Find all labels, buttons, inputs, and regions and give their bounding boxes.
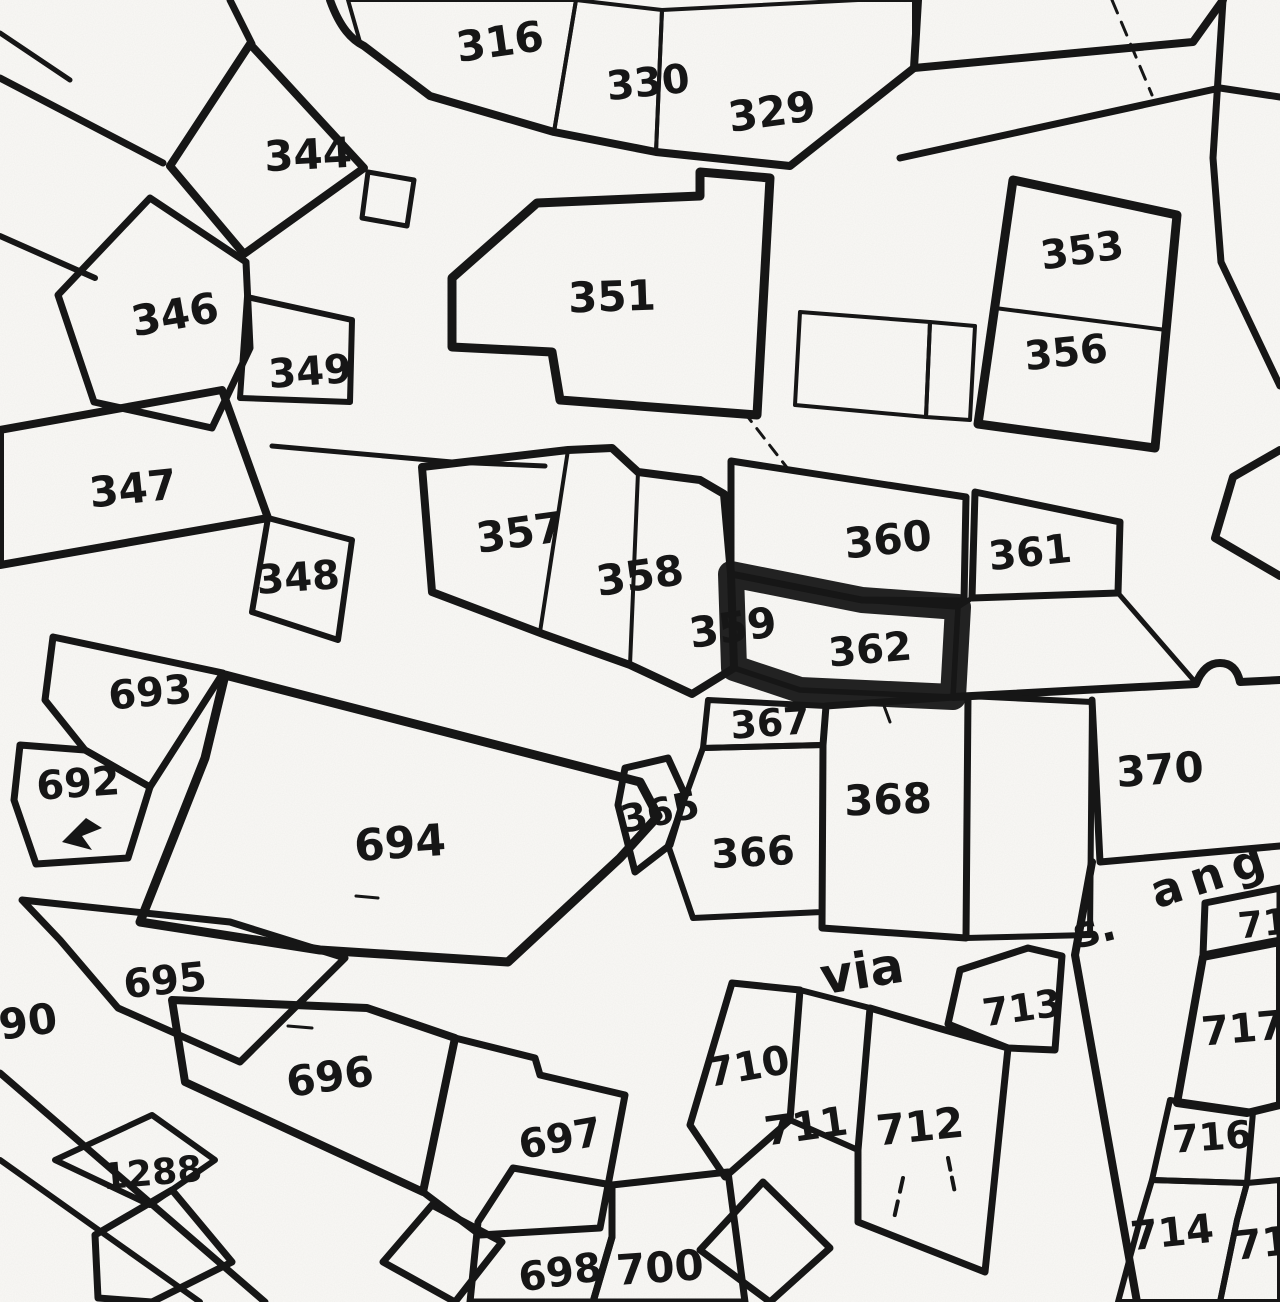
cadastral-map: 316 330 329 344 353 356 346 349 351 347 … <box>0 0 1280 1302</box>
parcel-330-label: 330 <box>604 56 692 110</box>
parcel-695-label: 695 <box>121 954 209 1008</box>
map-canvas: 316 330 329 344 353 356 346 349 351 347 … <box>0 0 1280 1302</box>
parcel-344-label: 344 <box>263 128 353 182</box>
parcel-90-label: 90 <box>0 993 60 1050</box>
parcel-366-label: 366 <box>710 828 796 878</box>
tick-mark <box>288 1026 312 1028</box>
parcel-349-label: 349 <box>267 346 354 398</box>
parcel-717-label: 717 <box>1199 1002 1280 1055</box>
parcel-368-label: 368 <box>843 773 932 825</box>
parcel-360-label: 360 <box>842 511 934 569</box>
parcel-348-label: 348 <box>255 552 342 604</box>
parcel-693-label: 693 <box>106 666 193 719</box>
parcel-361-label: 361 <box>986 526 1074 580</box>
parcel-718-partial-label: 71 <box>1236 901 1280 947</box>
parcel-347-label: 347 <box>87 460 179 518</box>
parcel-716-label: 716 <box>1171 1112 1253 1161</box>
parcel-700-label: 700 <box>615 1240 706 1295</box>
parcel-714-label: 714 <box>1128 1206 1216 1260</box>
parcel-715-partial-label: 71 <box>1232 1218 1280 1270</box>
parcel-362-label: 362 <box>826 623 913 676</box>
parcel-712-label: 712 <box>874 1098 966 1156</box>
parcel-692-label: 692 <box>35 758 122 810</box>
tick-mark <box>356 896 378 898</box>
parcel-356-label: 356 <box>1022 326 1110 380</box>
parcel-367-label: 367 <box>729 698 811 747</box>
parcel-1288-label: 1288 <box>100 1149 203 1199</box>
parcel-694-label: 694 <box>352 815 447 872</box>
parcel-370-label: 370 <box>1115 742 1206 797</box>
parcel-351-label: 351 <box>567 270 656 322</box>
